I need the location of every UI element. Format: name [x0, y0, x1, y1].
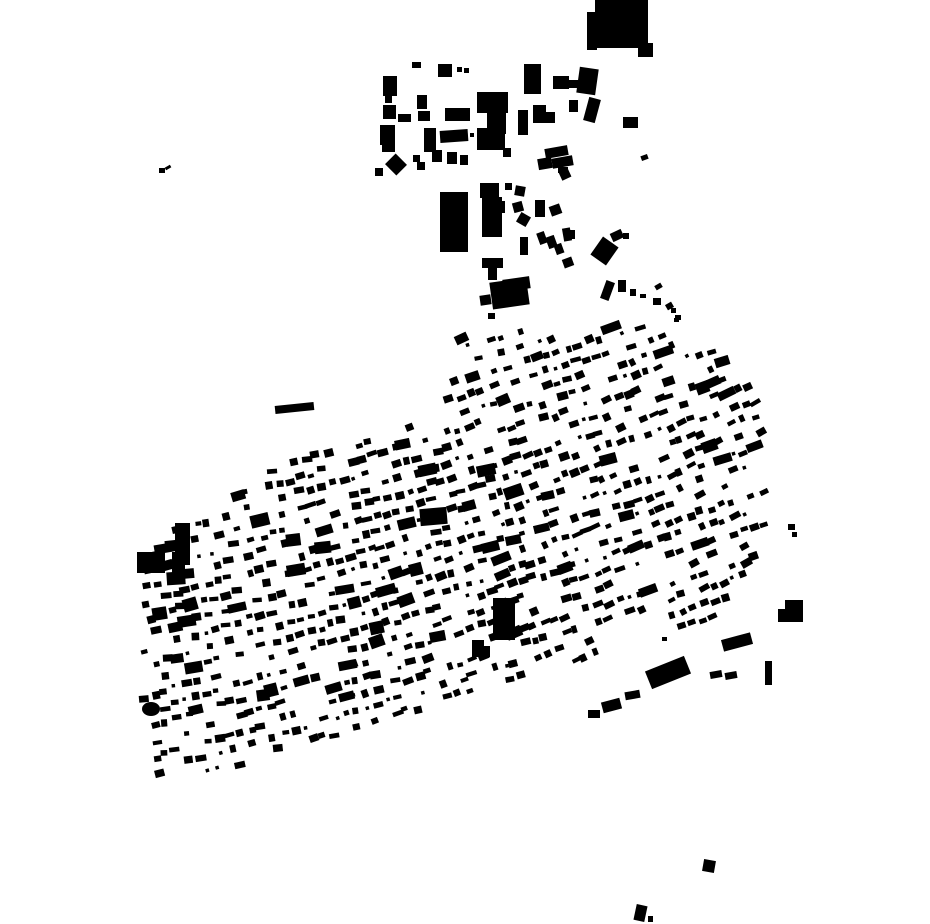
building-footprint	[234, 620, 242, 628]
building-footprint	[190, 535, 199, 543]
building-footprint	[349, 627, 359, 636]
building-footprint	[216, 701, 226, 706]
building-footprint	[785, 600, 803, 622]
building-footprint	[171, 684, 175, 688]
building-footprint	[154, 755, 162, 762]
building-footprint	[480, 183, 499, 198]
building-footprint	[533, 105, 546, 123]
building-footprint	[184, 731, 189, 736]
building-footprint	[638, 43, 653, 57]
building-footprint	[207, 643, 213, 649]
building-footprint	[497, 348, 505, 356]
building-footprint	[159, 168, 165, 173]
building-footprint	[489, 278, 529, 310]
building-footprint	[173, 635, 181, 643]
building-footprint	[385, 96, 392, 103]
building-footprint	[479, 294, 491, 305]
building-footprint	[139, 695, 149, 703]
building-footprint	[417, 162, 425, 170]
building-footprint	[276, 480, 283, 487]
building-footprint	[307, 627, 316, 635]
building-footprint	[398, 114, 411, 122]
building-footprint	[553, 76, 569, 89]
building-footprint	[477, 128, 505, 150]
building-footprint	[788, 524, 795, 530]
building-footprint	[466, 581, 472, 587]
building-footprint	[457, 67, 462, 72]
building-footprint	[142, 601, 150, 609]
building-footprint	[352, 707, 359, 714]
building-footprint	[545, 112, 555, 123]
building-footprint	[438, 64, 452, 77]
building-footprint	[405, 505, 414, 512]
building-footprint	[382, 140, 395, 152]
building-footprint	[317, 482, 327, 491]
building-footprint	[792, 532, 797, 537]
building-footprint	[488, 268, 497, 280]
building-footprint	[202, 519, 210, 528]
building-footprint	[618, 280, 626, 292]
building-footprint	[161, 719, 168, 727]
building-footprint	[204, 739, 211, 744]
building-footprint	[671, 308, 676, 313]
building-footprint	[648, 916, 653, 922]
building-footprint	[214, 576, 221, 584]
building-footprint	[278, 494, 286, 502]
building-footprint	[765, 661, 772, 685]
building-footprint	[231, 587, 242, 594]
building-footprint	[653, 298, 661, 305]
building-footprint	[191, 633, 199, 641]
building-footprint	[595, 0, 648, 48]
building-footprint	[221, 623, 231, 628]
building-footprint	[244, 504, 250, 510]
building-footprint	[524, 64, 541, 94]
building-footprint	[440, 192, 468, 252]
building-footprint	[413, 155, 420, 162]
building-footprint	[317, 639, 325, 647]
building-footprint	[569, 100, 578, 112]
building-footprint	[424, 128, 436, 152]
building-footprint	[375, 168, 383, 176]
building-footprint	[623, 233, 629, 239]
building-footprint	[514, 470, 518, 474]
building-footprint	[267, 469, 277, 474]
building-footprint	[432, 150, 442, 162]
building-footprint	[482, 646, 490, 657]
building-footprint	[568, 80, 578, 88]
building-footprint	[518, 110, 528, 135]
building-footprint	[214, 734, 225, 743]
building-footprint	[285, 533, 301, 547]
building-footprint	[419, 507, 447, 526]
building-footprint	[279, 527, 285, 533]
building-footprint	[191, 612, 201, 621]
building-footprint	[640, 294, 646, 298]
building-footprint	[417, 518, 421, 522]
figure-ground-map-page	[0, 0, 930, 924]
building-footprint	[317, 465, 326, 471]
building-footprint	[778, 609, 787, 622]
building-footprint	[493, 598, 515, 640]
building-footprint	[470, 133, 474, 137]
building-footprint	[498, 201, 505, 213]
round-building-footprint	[142, 702, 160, 716]
building-footprint	[182, 697, 186, 701]
building-footprint	[460, 155, 468, 165]
building-footprint	[520, 237, 528, 255]
building-footprint	[201, 597, 208, 603]
building-footprint	[514, 185, 526, 197]
building-footprint	[447, 152, 457, 164]
building-footprint	[265, 481, 273, 490]
building-footprint	[488, 313, 495, 319]
building-footprint	[440, 129, 469, 143]
building-footprint	[268, 593, 277, 602]
building-footprint	[154, 581, 162, 587]
building-footprint	[505, 183, 512, 190]
building-footprint	[288, 601, 295, 609]
building-footprint	[351, 677, 358, 685]
building-footprint	[210, 552, 214, 556]
building-footprint	[397, 666, 401, 670]
building-footprint	[235, 651, 244, 657]
building-footprint	[662, 637, 667, 641]
building-footprint	[630, 289, 636, 296]
building-footprint	[252, 597, 262, 602]
building-footprint	[197, 554, 201, 558]
building-footprint	[209, 597, 218, 602]
building-footprint	[170, 653, 184, 664]
building-footprint	[273, 744, 283, 752]
building-footprint	[195, 521, 201, 526]
figure-ground-map	[0, 0, 930, 924]
building-footprint	[314, 541, 331, 554]
building-footprint	[171, 699, 179, 705]
building-footprint	[184, 755, 194, 763]
building-footprint	[205, 631, 209, 635]
building-footprint	[503, 148, 511, 157]
building-footprint	[535, 200, 545, 217]
building-footprint	[335, 615, 345, 624]
building-footprint	[347, 645, 357, 653]
building-footprint	[159, 688, 167, 695]
building-footprint	[674, 318, 679, 322]
building-footprint	[137, 552, 165, 573]
building-footprint	[268, 734, 275, 742]
building-footprint	[576, 67, 598, 95]
building-footprint	[287, 619, 295, 625]
building-footprint	[213, 688, 219, 693]
building-footprint	[151, 606, 167, 621]
round-buildings	[142, 702, 160, 716]
building-footprint	[273, 639, 282, 646]
building-footprint	[702, 859, 716, 873]
building-footprint	[304, 726, 308, 730]
building-footprint	[270, 529, 277, 534]
building-footprint	[204, 612, 212, 617]
building-footprint	[160, 750, 167, 756]
building-footprint	[351, 502, 361, 510]
building-footprint	[343, 522, 349, 528]
building-footprint	[161, 592, 172, 599]
building-footprint	[383, 76, 397, 96]
building-footprint	[445, 108, 470, 121]
building-footprint	[172, 552, 185, 582]
building-footprint	[359, 561, 367, 569]
building-footprint	[418, 111, 430, 121]
building-footprint	[623, 117, 638, 128]
building-footprint	[417, 95, 427, 109]
building-footprint	[193, 677, 201, 685]
building-footprint	[392, 508, 400, 515]
building-footprint	[257, 627, 264, 632]
building-footprint	[464, 68, 469, 73]
building-footprint	[565, 230, 575, 239]
building-footprint	[477, 92, 508, 113]
building-footprint	[262, 578, 271, 587]
building-footprint	[361, 611, 365, 615]
building-footprint	[383, 105, 396, 119]
building-footprint	[191, 691, 200, 700]
building-footprint	[412, 62, 421, 68]
building-footprint	[587, 12, 597, 50]
building-footprint	[588, 710, 600, 718]
building-footprint	[482, 258, 503, 268]
building-footprint	[286, 634, 295, 643]
building-footprint	[161, 672, 169, 680]
